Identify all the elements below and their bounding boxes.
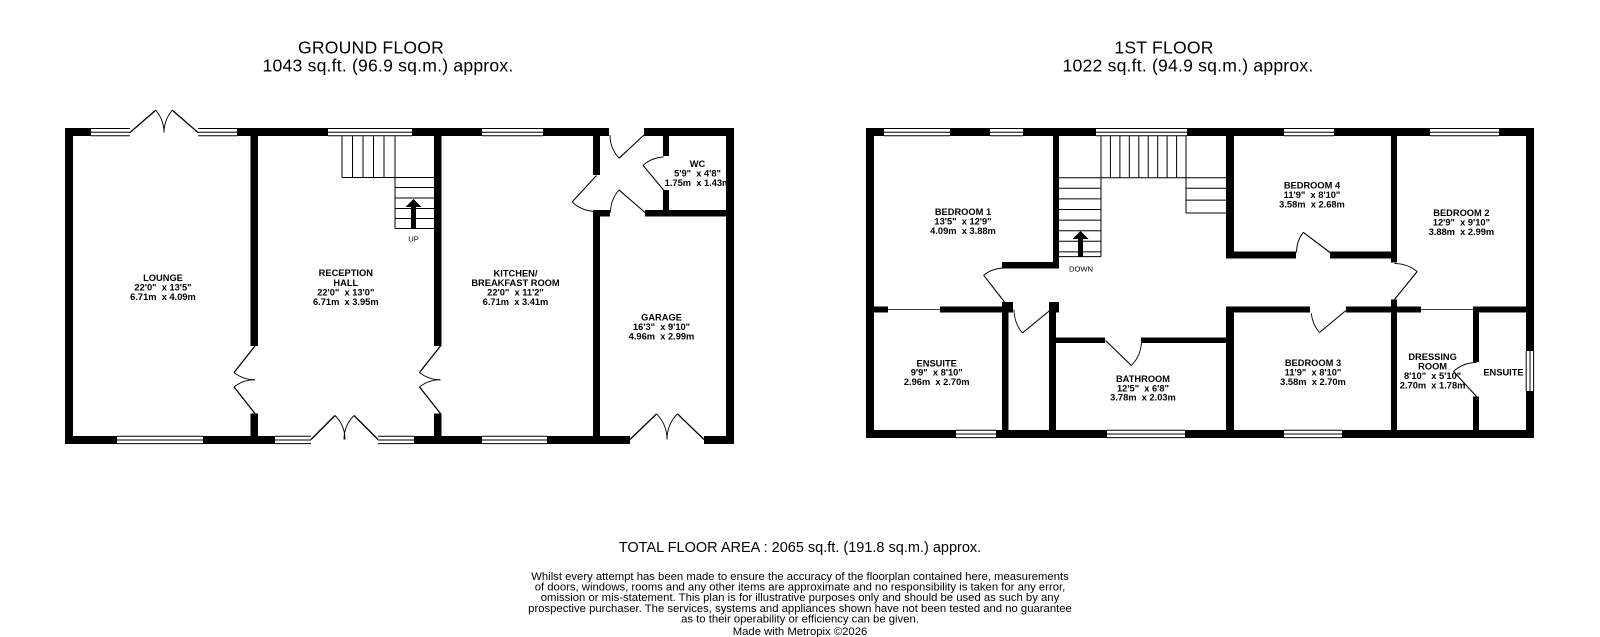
svg-text:ENSUITE: ENSUITE: [1483, 368, 1523, 378]
svg-text:HALL: HALL: [333, 278, 358, 288]
svg-text:8'10" x 5'10": 8'10" x 5'10": [1404, 371, 1461, 381]
svg-text:11'9" x 8'10": 11'9" x 8'10": [1284, 190, 1341, 200]
svg-text:1022 sq.ft. (94.9 sq.m.) appro: 1022 sq.ft. (94.9 sq.m.) approx.: [1063, 56, 1314, 76]
svg-text:6.71m x 3.95m: 6.71m x 3.95m: [313, 297, 379, 307]
svg-text:1.75m x 1.43m: 1.75m x 1.43m: [665, 178, 731, 188]
svg-text:Made with Metropix ©2026: Made with Metropix ©2026: [733, 626, 868, 637]
svg-text:BEDROOM 4: BEDROOM 4: [1284, 180, 1341, 190]
svg-text:2.96m x 2.70m: 2.96m x 2.70m: [904, 377, 970, 387]
svg-text:12'9" x 9'10": 12'9" x 9'10": [1433, 217, 1490, 227]
svg-text:6.71m x 4.09m: 6.71m x 4.09m: [130, 292, 196, 302]
svg-text:RECEPTION: RECEPTION: [319, 268, 374, 278]
svg-text:4.96m x 2.99m: 4.96m x 2.99m: [629, 332, 695, 342]
svg-text:as to their operability or eff: as to their operability or efficiency ca…: [681, 614, 919, 626]
svg-text:ROOM: ROOM: [1418, 361, 1447, 371]
svg-text:13'5" x 12'9": 13'5" x 12'9": [934, 216, 991, 226]
svg-text:UP: UP: [408, 235, 419, 244]
svg-text:1ST FLOOR: 1ST FLOOR: [1114, 38, 1213, 58]
svg-text:BEDROOM 2: BEDROOM 2: [1433, 208, 1489, 218]
svg-text:16'3" x 9'10": 16'3" x 9'10": [633, 322, 690, 332]
svg-text:11'9" x 8'10": 11'9" x 8'10": [1285, 367, 1342, 377]
svg-text:GARAGE: GARAGE: [641, 313, 682, 323]
svg-text:3.88m x 2.99m: 3.88m x 2.99m: [1429, 227, 1495, 237]
svg-text:22'0" x 13'5": 22'0" x 13'5": [134, 283, 191, 293]
svg-text:4.09m x 3.88m: 4.09m x 3.88m: [930, 226, 996, 236]
svg-text:3.58m x 2.68m: 3.58m x 2.68m: [1279, 199, 1345, 209]
svg-text:BATHROOM: BATHROOM: [1116, 374, 1170, 384]
svg-text:DOWN: DOWN: [1069, 264, 1093, 273]
svg-text:6.71m x 3.41m: 6.71m x 3.41m: [483, 297, 549, 307]
svg-text:3.78m x 2.03m: 3.78m x 2.03m: [1110, 393, 1176, 403]
svg-text:GROUND FLOOR: GROUND FLOOR: [298, 38, 444, 58]
svg-text:BEDROOM 3: BEDROOM 3: [1285, 358, 1341, 368]
svg-text:TOTAL FLOOR AREA : 2065 sq.ft.: TOTAL FLOOR AREA : 2065 sq.ft. (191.8 sq…: [619, 540, 981, 556]
svg-text:1043 sq.ft. (96.9 sq.m.) appro: 1043 sq.ft. (96.9 sq.m.) approx.: [263, 56, 514, 76]
svg-text:2.70m x 1.78m: 2.70m x 1.78m: [1400, 380, 1466, 390]
svg-text:DRESSING: DRESSING: [1408, 352, 1457, 362]
svg-text:LOUNGE: LOUNGE: [143, 273, 183, 283]
svg-text:3.58m x 2.70m: 3.58m x 2.70m: [1280, 377, 1346, 387]
